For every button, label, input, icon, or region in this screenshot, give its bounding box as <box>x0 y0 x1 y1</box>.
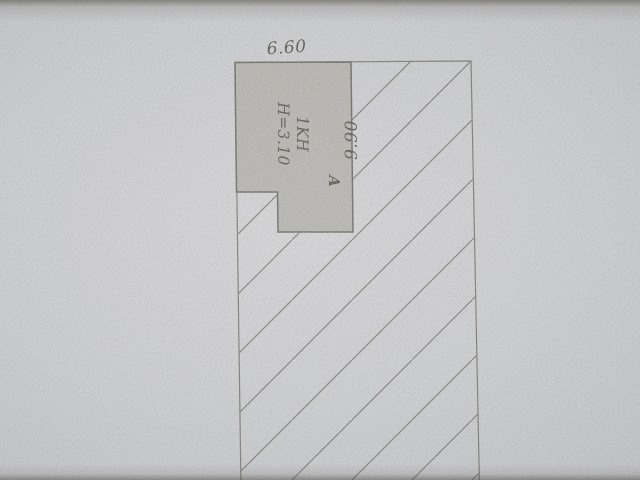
section-label-a: A <box>325 173 343 187</box>
scanned-site-plan-photo: 6.60 1KH H=3.10 9.90 A <box>0 0 640 480</box>
building-type-label: 1KH <box>293 116 311 152</box>
dimension-side-9-90: 9.90 <box>342 120 362 160</box>
site-plan-drawing: 6.60 1KH H=3.10 9.90 A <box>0 0 640 480</box>
building-height-label: H=3.10 <box>274 101 292 165</box>
dimension-top-6-60: 6.60 <box>266 37 307 60</box>
